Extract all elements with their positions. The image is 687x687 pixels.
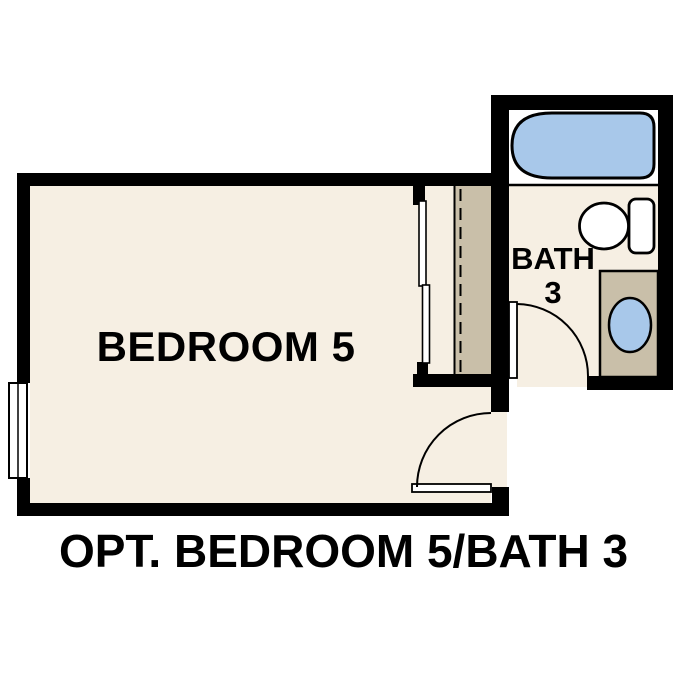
wall-bedroom-top xyxy=(17,173,509,186)
bedroom-doorway-floor xyxy=(491,412,507,487)
bedroom-label: BEDROOM 5 xyxy=(46,323,406,371)
plan-title: OPT. BEDROOM 5/BATH 3 xyxy=(0,527,687,575)
bedroom-door-leaf xyxy=(412,484,491,492)
sliding-door-panel-upper xyxy=(419,201,426,286)
sink-basin xyxy=(609,298,651,352)
wall-bedroom-left-upper xyxy=(17,173,30,383)
wall-bedroom-door-corner-block xyxy=(492,487,509,516)
bath-label: BATH xyxy=(493,241,613,277)
bath-number-label: 3 xyxy=(493,275,613,311)
floorplan-canvas: BEDROOM 5 BATH 3 OPT. BEDROOM 5/BATH 3 xyxy=(0,0,687,687)
wall-bath-top xyxy=(491,95,673,110)
toilet-tank xyxy=(629,199,654,253)
bathtub xyxy=(512,113,654,178)
wall-bath-right xyxy=(658,95,673,390)
wall-closet-bottom xyxy=(413,374,509,387)
bath-doorway-floor xyxy=(517,376,587,387)
bath-door-leaf xyxy=(509,302,517,378)
wall-bedroom-bottom xyxy=(17,503,509,516)
sliding-door-panel-lower xyxy=(423,285,430,363)
